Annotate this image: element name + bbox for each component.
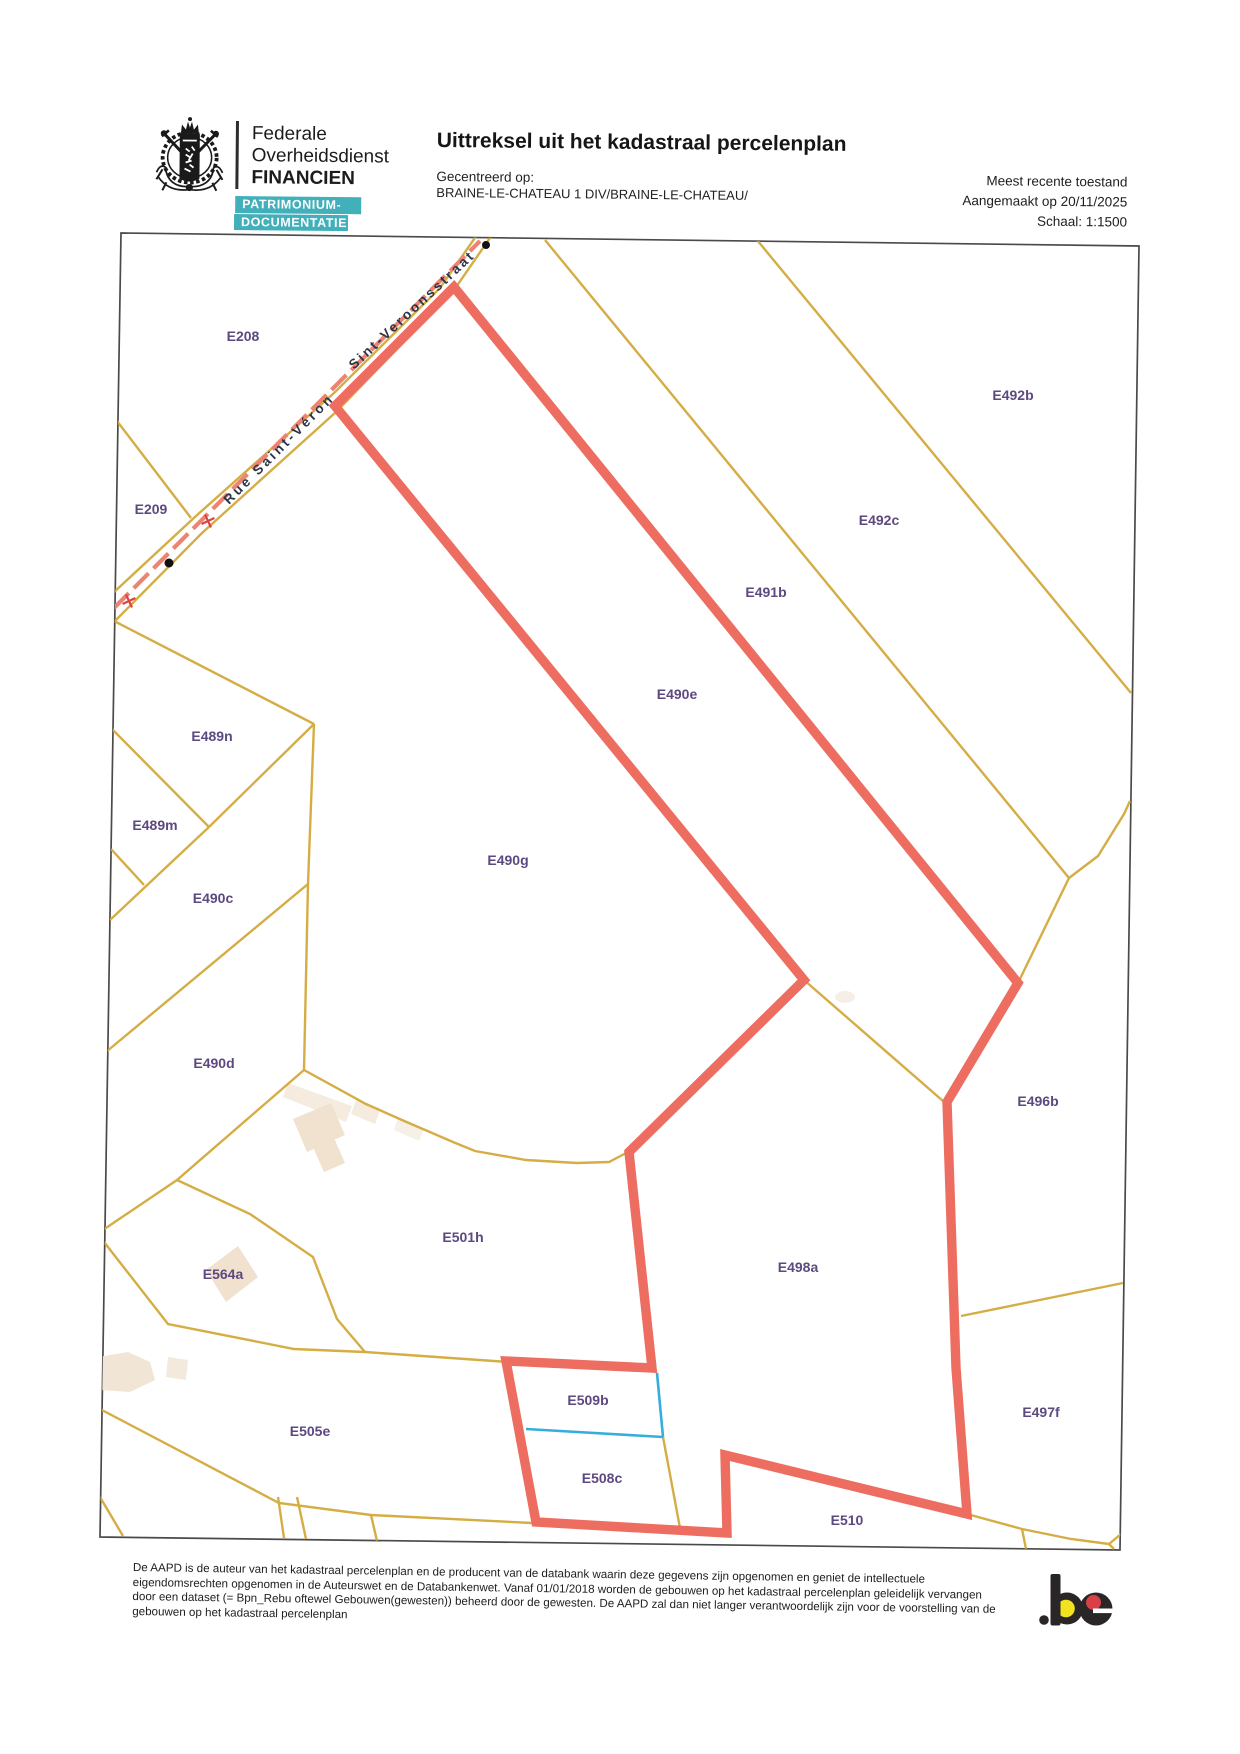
svg-text:E490c: E490c xyxy=(193,890,234,906)
svg-text:E490g: E490g xyxy=(487,852,528,868)
svg-text:E508c: E508c xyxy=(582,1470,623,1486)
svg-text:E492c: E492c xyxy=(859,512,900,528)
svg-text:E490e: E490e xyxy=(657,686,698,702)
svg-text:E209: E209 xyxy=(135,501,168,517)
svg-text:E489n: E489n xyxy=(191,728,232,744)
svg-text:E496b: E496b xyxy=(1017,1093,1058,1109)
svg-text:E501h: E501h xyxy=(442,1229,483,1245)
svg-text:E509b: E509b xyxy=(567,1392,608,1408)
svg-text:E564a: E564a xyxy=(203,1266,244,1282)
svg-text:E510: E510 xyxy=(831,1512,864,1528)
svg-text:E497f: E497f xyxy=(1022,1404,1060,1420)
svg-text:E505e: E505e xyxy=(290,1423,331,1439)
svg-text:E492b: E492b xyxy=(992,387,1033,403)
svg-text:E208: E208 xyxy=(227,328,260,344)
svg-text:E489m: E489m xyxy=(132,817,177,833)
svg-text:E498a: E498a xyxy=(778,1259,819,1275)
svg-text:E490d: E490d xyxy=(193,1055,234,1071)
svg-text:E491b: E491b xyxy=(745,584,786,600)
